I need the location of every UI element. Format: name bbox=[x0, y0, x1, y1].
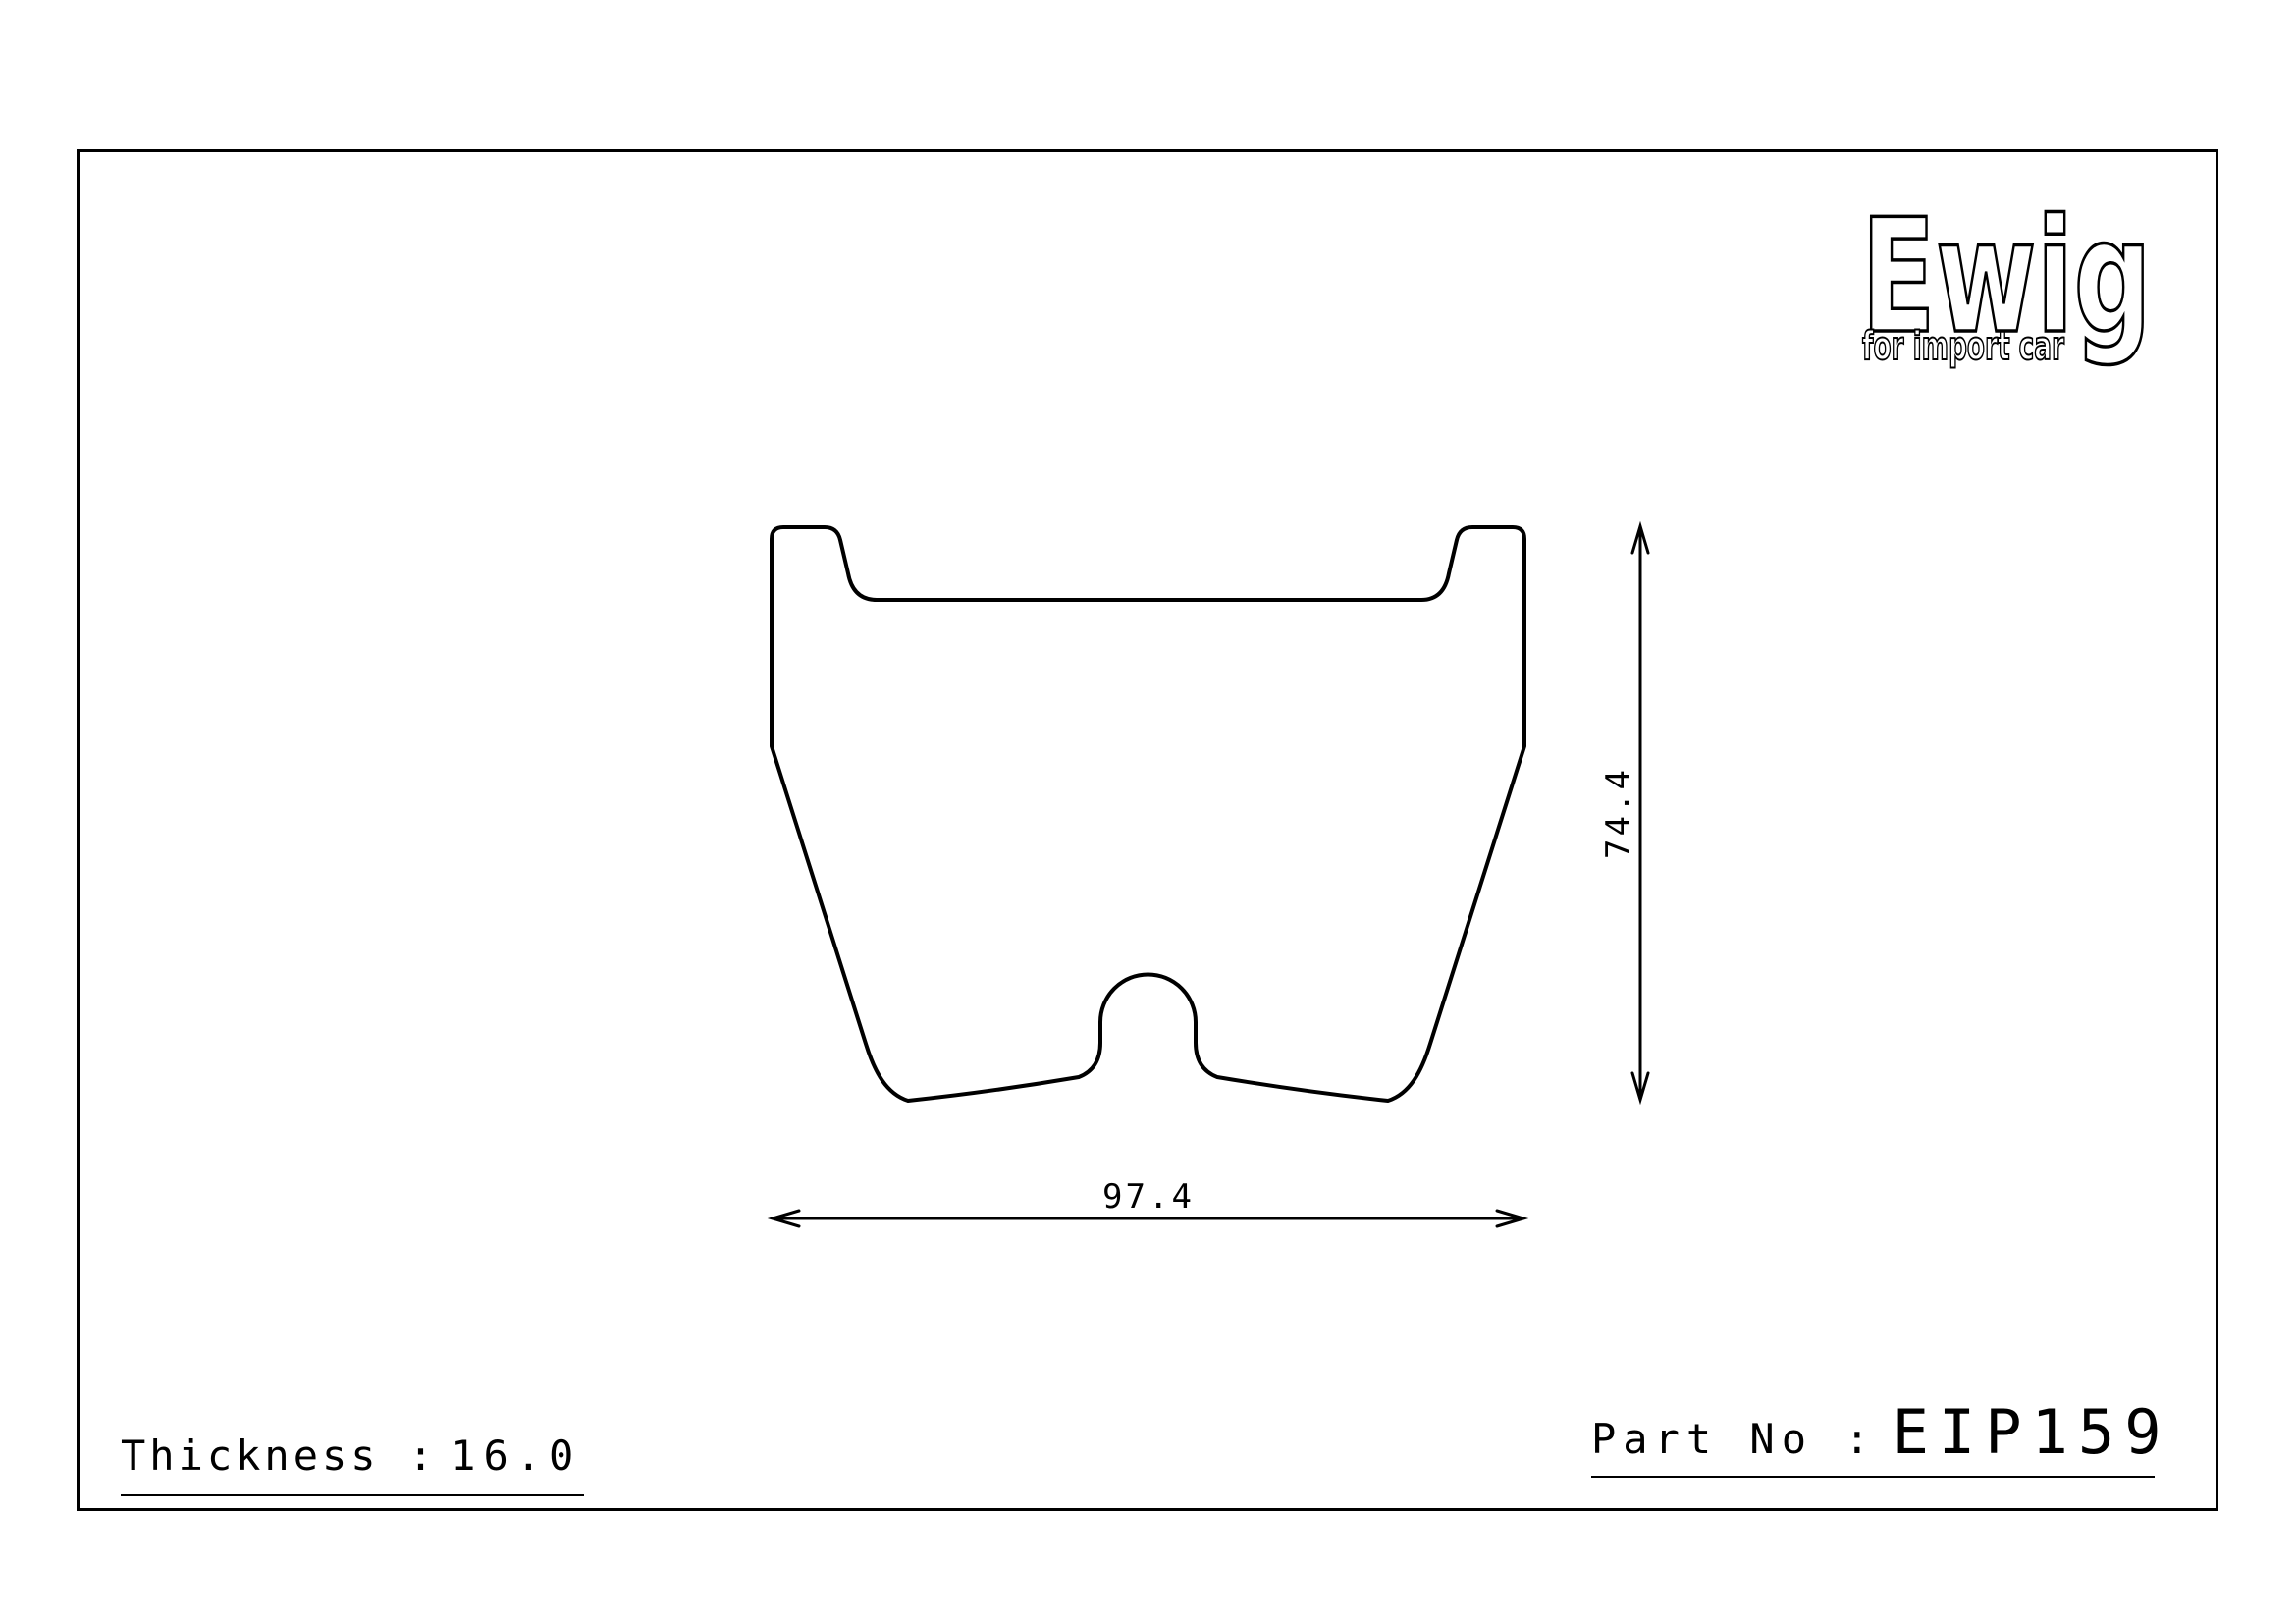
part-number-label: Part No : bbox=[1591, 1415, 1877, 1463]
drawing-sheet: 74.4 97.4 Ewig for import car Thickness … bbox=[0, 0, 2296, 1623]
thickness-label: Thickness : bbox=[121, 1432, 437, 1480]
part-number-field: Part No :EIP159 bbox=[1591, 1402, 2155, 1478]
height-dimension-value: 74.4 bbox=[1599, 767, 1638, 859]
brake-pad-outline bbox=[772, 527, 1524, 1101]
width-dimension-value: 97.4 bbox=[1102, 1177, 1195, 1217]
part-number-value: EIP159 bbox=[1893, 1396, 2171, 1468]
brand-logo-tagline: for import car bbox=[1862, 324, 2064, 369]
thickness-value: 16.0 bbox=[451, 1432, 581, 1480]
brand-logo: Ewig for import car bbox=[1861, 185, 2152, 369]
technical-drawing-canvas: 74.4 97.4 Ewig for import car bbox=[0, 0, 2296, 1623]
thickness-field: Thickness :16.0 bbox=[121, 1426, 584, 1496]
